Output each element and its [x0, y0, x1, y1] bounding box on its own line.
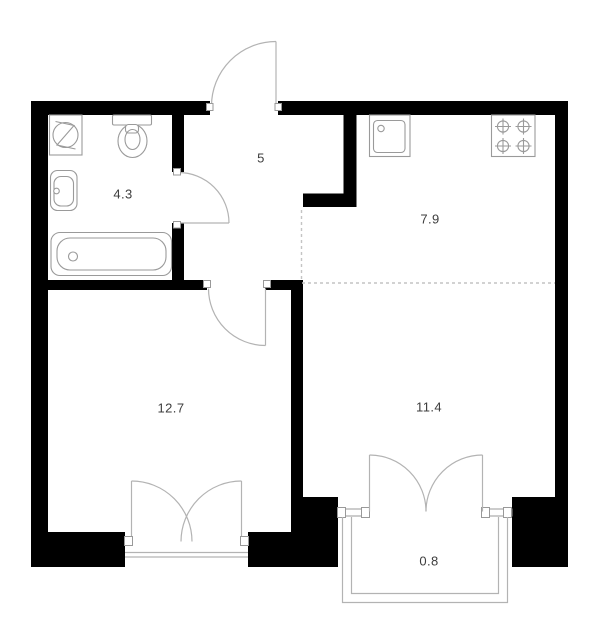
entrance-door-jamb-left — [207, 104, 214, 111]
wall-bottom-left — [31, 532, 125, 567]
bedroom-door — [204, 281, 271, 346]
wall-room-divider — [291, 281, 303, 567]
bathroom-sink-icon — [51, 171, 78, 211]
wall-kitchen-stub — [303, 194, 357, 208]
wall-bathroom-right-lower — [172, 223, 184, 281]
balcony-door-left-arc — [370, 455, 427, 512]
area-label-hallway: 5 — [257, 151, 265, 166]
area-label-balcony: 0.8 — [419, 554, 438, 569]
entrance-door — [207, 42, 282, 111]
stove-icon — [492, 115, 536, 157]
kitchen-sink-icon — [370, 115, 411, 157]
window-jamb-left — [125, 537, 133, 546]
bathroom-door — [174, 169, 230, 229]
area-label-bedroom: 12.7 — [158, 401, 185, 416]
apartment-floor-plan: 4.3 5 7.9 12.7 11.4 0.8 — [0, 0, 600, 632]
washing-machine-icon — [50, 115, 83, 155]
area-label-kitchen: 7.9 — [420, 212, 439, 227]
bedroom-door-arc — [209, 289, 266, 346]
floorplan-drawing — [0, 0, 600, 632]
bedroom-window — [125, 481, 249, 557]
wall-bathroom-bottom — [48, 280, 207, 290]
window-casement-right-arc — [181, 481, 242, 542]
wall-left — [31, 101, 48, 567]
wall-top-left — [31, 101, 210, 115]
balcony-door — [338, 455, 513, 518]
balcony-sill-left-cap2 — [362, 508, 370, 518]
wall-top-right — [278, 101, 568, 115]
entrance-door-arc — [212, 42, 277, 107]
balcony-sill-right-cap2 — [504, 508, 512, 518]
entrance-door-jamb-right — [275, 104, 282, 111]
balcony-sill-left-cap1 — [338, 508, 346, 518]
wall-kitchen-vertical — [344, 115, 357, 207]
bathroom-door-jamb-bottom — [174, 222, 181, 229]
toilet-icon — [113, 115, 152, 158]
bathtub-icon — [51, 233, 172, 276]
bedroom-door-jamb-left — [204, 281, 211, 288]
wall-balcony-block-right — [512, 497, 568, 567]
window-casement-left-arc — [132, 481, 193, 542]
area-label-living-room: 11.4 — [416, 400, 442, 415]
wall-bathroom-right-upper — [172, 115, 184, 172]
bathroom-door-arc — [179, 173, 230, 224]
bedroom-door-jamb-right — [264, 281, 271, 288]
area-label-bathroom: 4.3 — [113, 187, 132, 202]
window-jamb-right — [241, 537, 249, 546]
balcony-door-right-arc — [426, 455, 483, 512]
bathroom-door-jamb-top — [174, 169, 181, 176]
wall-balcony-block-left — [300, 497, 338, 567]
